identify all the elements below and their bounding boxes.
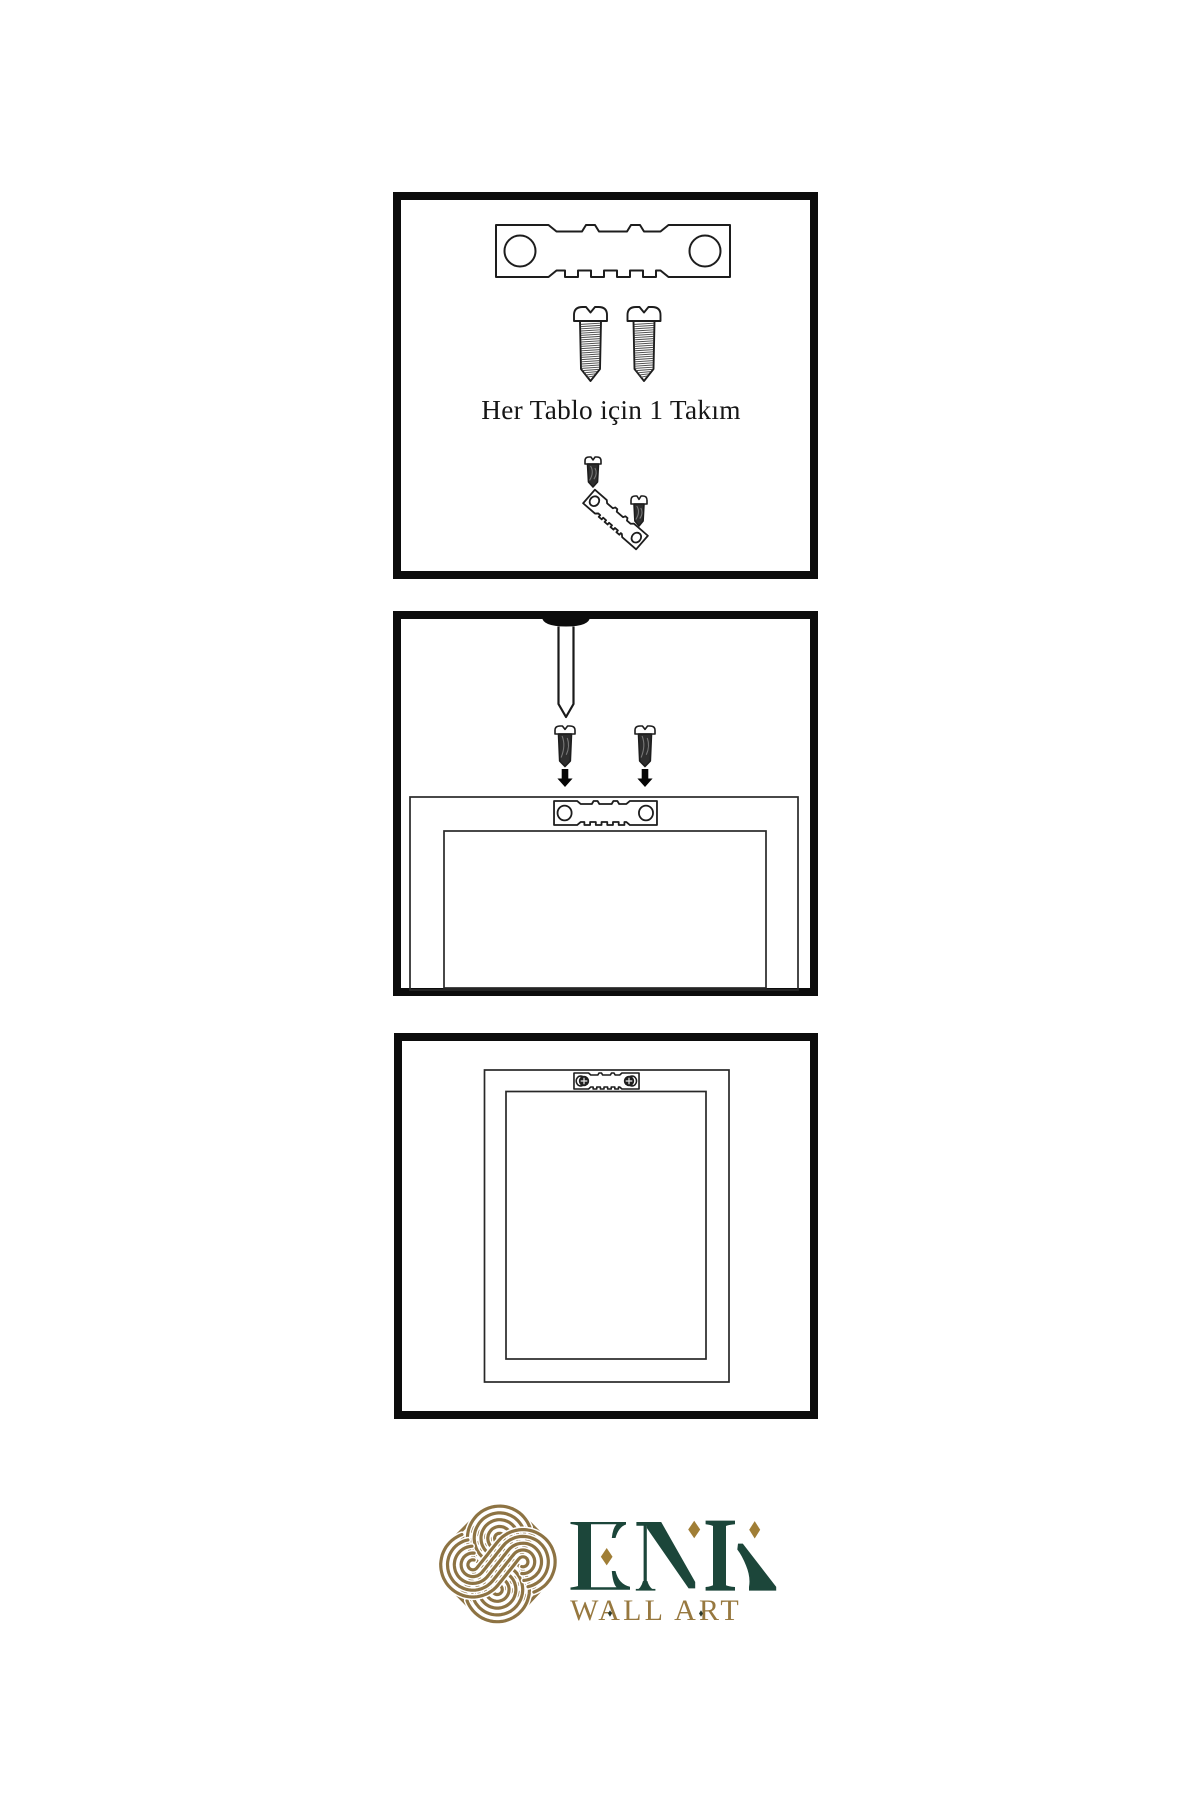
svg-text:Her Tablo için 1 Takım: Her Tablo için 1 Takım [481, 395, 741, 425]
svg-text:WALL ART: WALL ART [570, 1594, 742, 1627]
